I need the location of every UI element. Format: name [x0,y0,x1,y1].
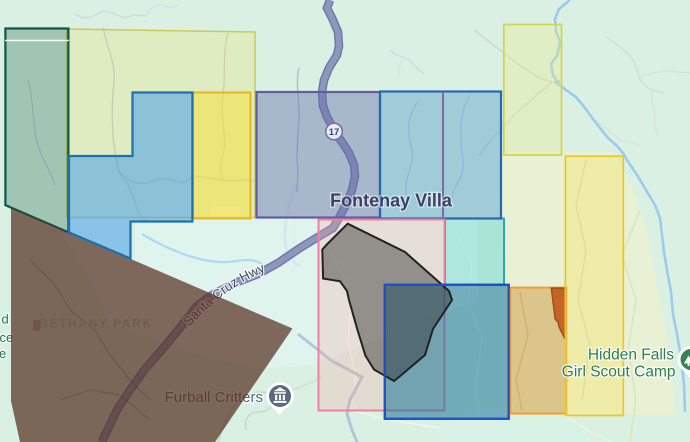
svg-text:Girl Scout Camp: Girl Scout Camp [562,364,676,381]
svg-text:BETHANY PARK: BETHANY PARK [39,317,152,331]
svg-text:d: d [2,312,9,327]
svg-text:17: 17 [329,127,340,138]
svg-text:e: e [0,346,6,361]
svg-text:Hidden Falls: Hidden Falls [588,347,674,364]
svg-text:Fontenay Villa: Fontenay Villa [330,191,453,211]
